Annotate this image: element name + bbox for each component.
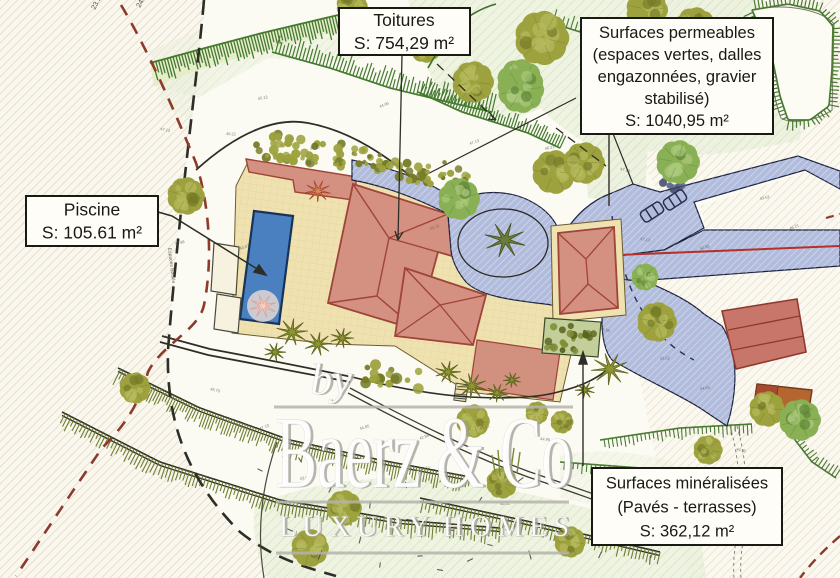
svg-text:(Pavés - terrasses): (Pavés - terrasses) (617, 498, 756, 516)
svg-text:Toitures: Toitures (373, 10, 435, 30)
svg-text:S: 754,29 m²: S: 754,29 m² (354, 33, 454, 53)
svg-text:Piscine: Piscine (64, 200, 120, 220)
svg-text:(espaces vertes, dalles: (espaces vertes, dalles (593, 46, 762, 64)
svg-text:engazonnées, gravier: engazonnées, gravier (598, 68, 757, 86)
svg-text:S: 1040,95 m²: S: 1040,95 m² (625, 112, 729, 130)
svg-text:Surfaces minéralisées: Surfaces minéralisées (606, 474, 768, 492)
svg-text:stabilisé): stabilisé) (644, 90, 709, 108)
svg-text:Surfaces permeables: Surfaces permeables (599, 24, 755, 42)
svg-text:S: 362,12 m²: S: 362,12 m² (640, 522, 735, 540)
svg-text:L U X U R Y H O M E S: L U X U R Y H O M E S (279, 510, 569, 543)
svg-text:46.21: 46.21 (226, 131, 237, 136)
svg-text:S: 105.61 m²: S: 105.61 m² (42, 223, 142, 243)
svg-text:Baerz & Co: Baerz & Co (276, 396, 573, 510)
svg-text:43.62: 43.62 (660, 355, 671, 361)
